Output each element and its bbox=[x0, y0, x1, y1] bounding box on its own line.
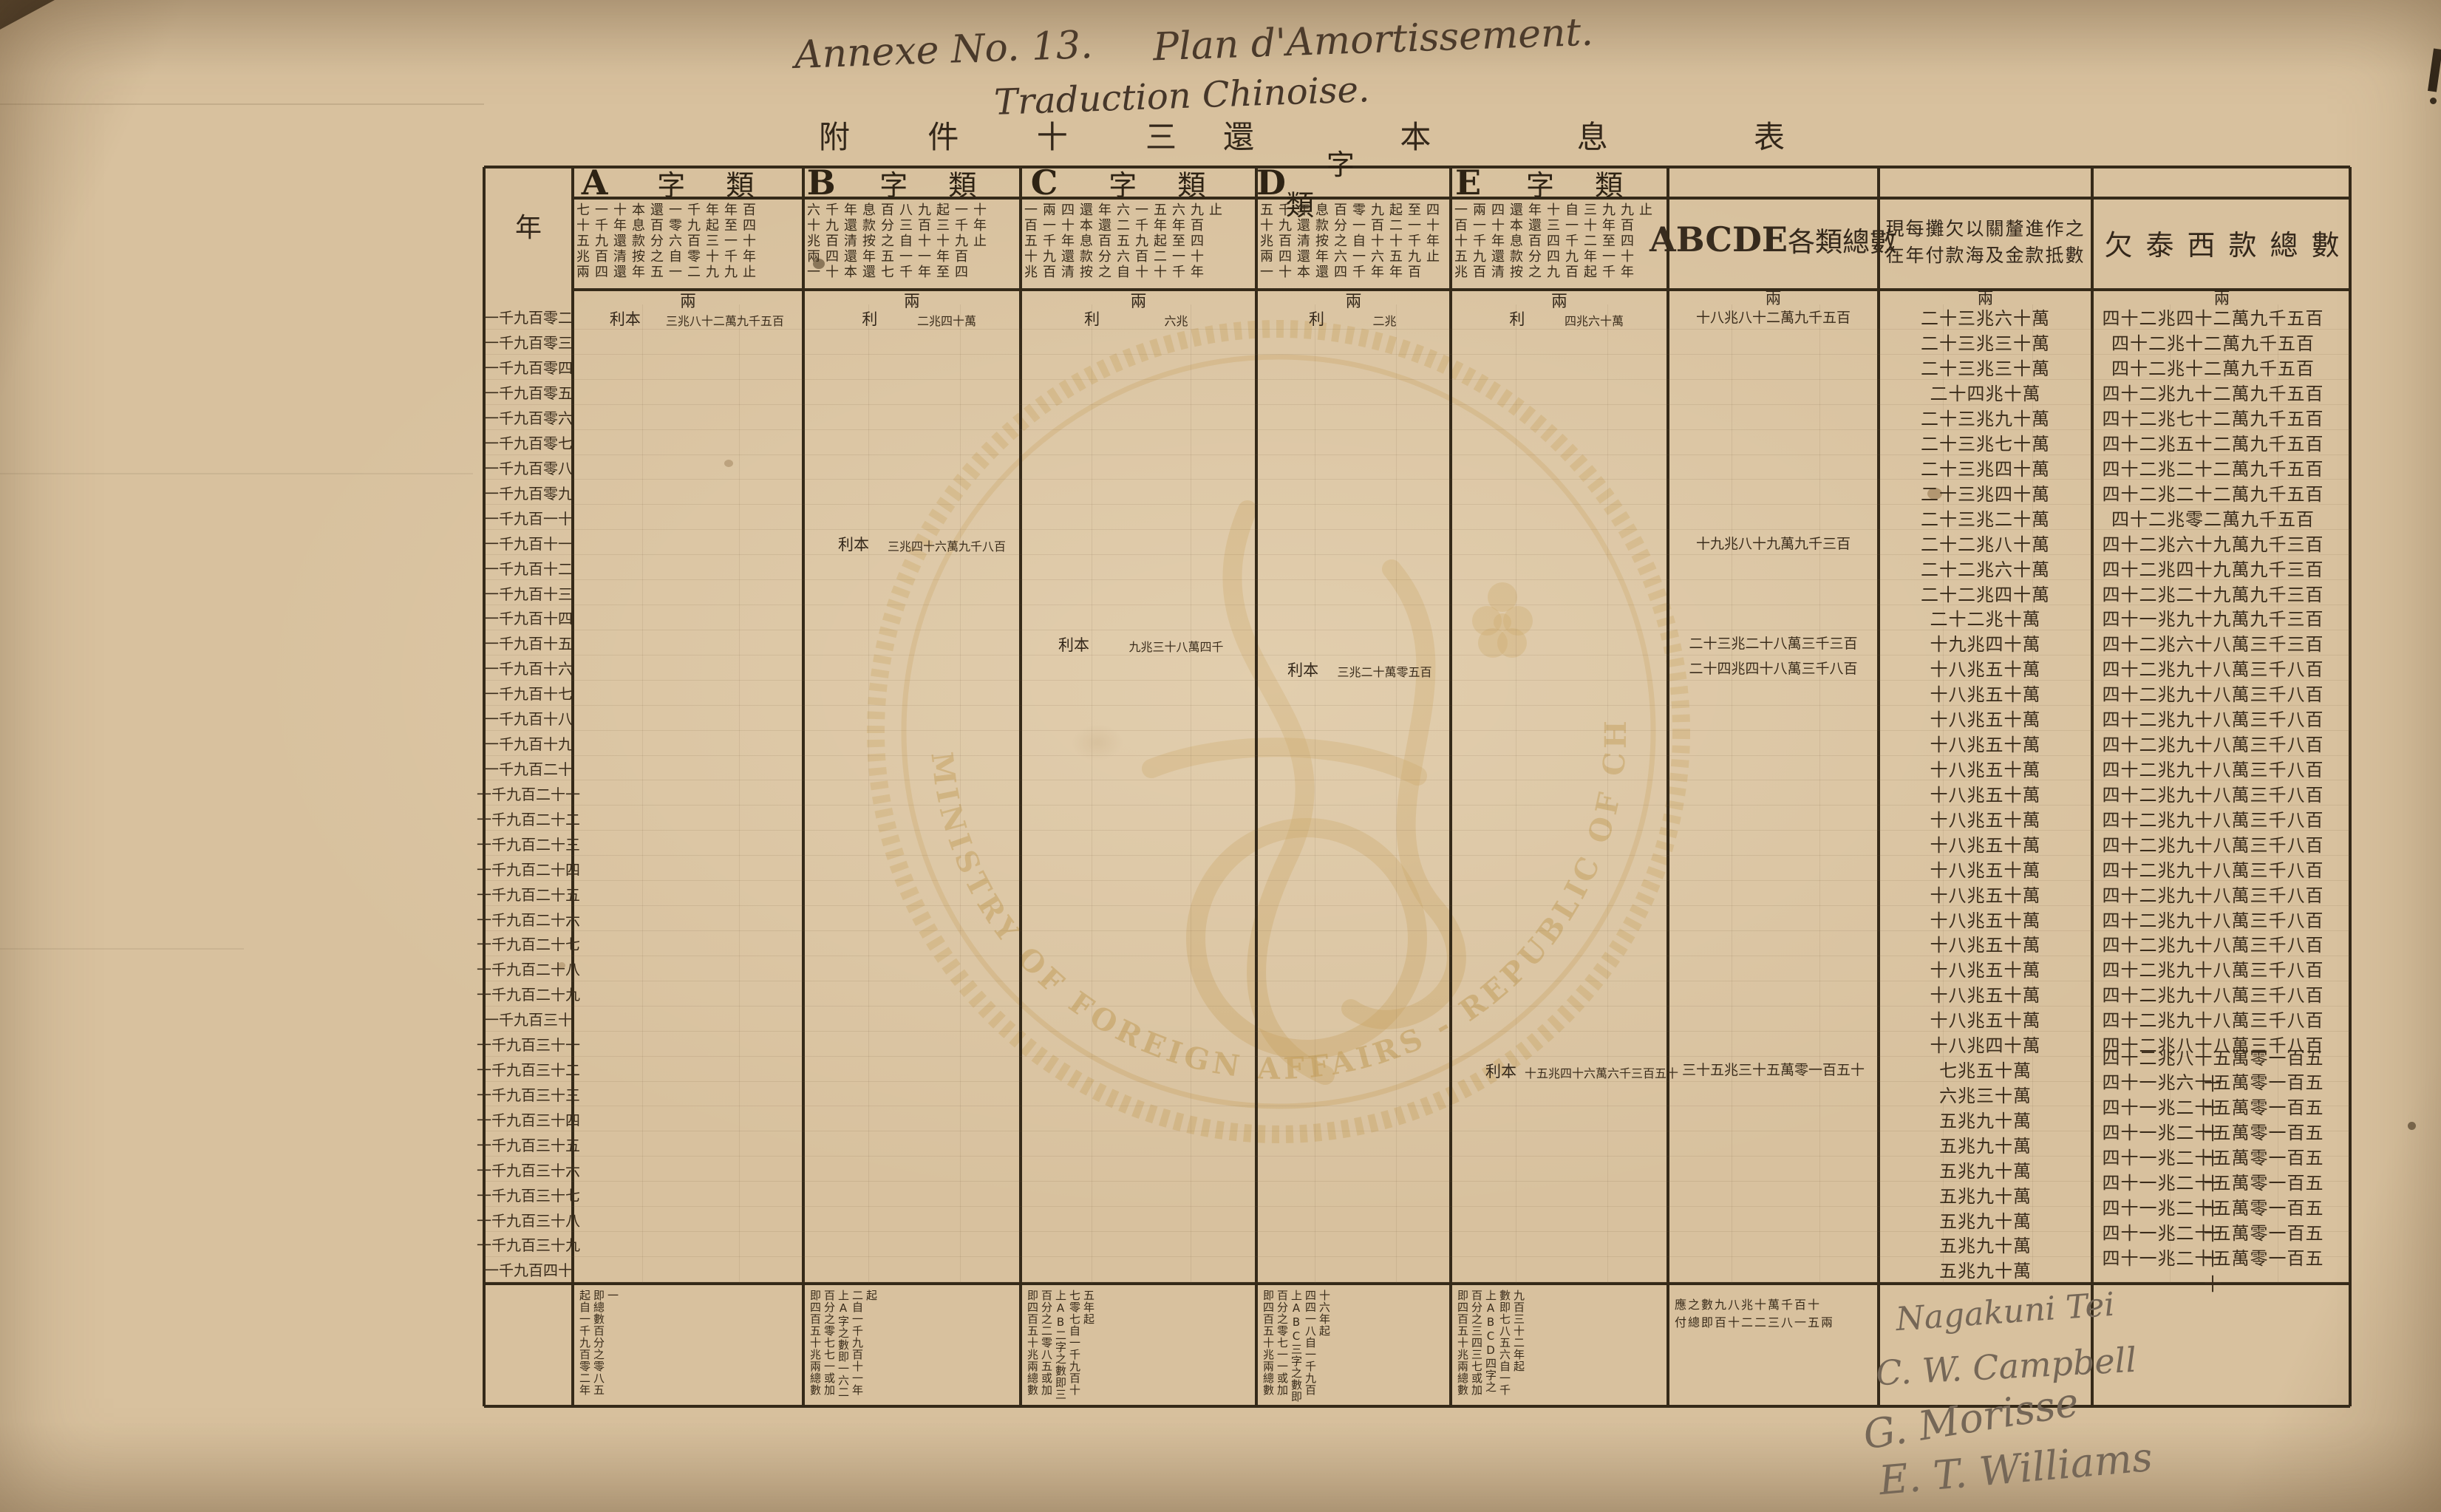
annual-payment-value: 十八兆五十萬 bbox=[1879, 831, 2092, 856]
annual-payment-value: 五兆九十萬 bbox=[1879, 1257, 2092, 1282]
owed-total-value: 四十二兆九十八萬三千八百 bbox=[2095, 806, 2331, 831]
category-letter: B bbox=[807, 163, 836, 202]
owed-total-value: 四十二兆二十二萬九千五百 bbox=[2095, 455, 2331, 480]
owed-total-value: 四十一兆九十九萬九千三百 bbox=[2095, 605, 2331, 630]
paper-crease bbox=[0, 103, 484, 105]
annual-payment-header-line1: 現每攤欠以關釐進作之 bbox=[1885, 214, 2085, 241]
pencil-column-guide bbox=[2278, 304, 2278, 1284]
year-row-label: 一千九百十六 bbox=[475, 655, 582, 681]
year-row-label: 一千九百二十 bbox=[475, 756, 582, 781]
table-rule-vertical bbox=[2349, 167, 2352, 1406]
interest-principal-label: 利 bbox=[862, 307, 877, 330]
interest-principal-label: 利本 bbox=[610, 307, 641, 330]
pencil-column-guide bbox=[2032, 304, 2033, 1284]
pencil-column-guide bbox=[1943, 304, 1944, 1284]
chinese-title-annex-number: 附 件 十 三 bbox=[819, 112, 1211, 157]
annual-payment-value: 十八兆四十萬 bbox=[1879, 1032, 2092, 1057]
pencil-column-guide bbox=[1191, 304, 1191, 1284]
annual-payment-value: 二十四兆十萬 bbox=[1879, 380, 2092, 405]
annotation-amount: 三兆四十六萬九千八百 bbox=[877, 537, 1016, 554]
interest-principal-annotation: 利本九兆三十八萬四千 bbox=[1021, 630, 1256, 655]
annual-payment-value: 十八兆五十萬 bbox=[1879, 1007, 2092, 1032]
scan-edge-artifact bbox=[2428, 48, 2441, 92]
stain bbox=[2408, 1122, 2416, 1130]
year-row-label: 一千九百二十一 bbox=[475, 780, 582, 806]
annual-payment-value: 五兆九十萬 bbox=[1879, 1157, 2092, 1182]
annotation-amount: 二兆 bbox=[1322, 311, 1446, 329]
owed-total-value: 四十二兆十二萬九千五百 bbox=[2095, 355, 2331, 380]
pencil-column-guide bbox=[739, 304, 740, 1284]
pencil-column-guide bbox=[868, 304, 869, 1284]
year-row-label: 一千九百二十五 bbox=[475, 881, 582, 906]
year-row-label: 一千九百十三 bbox=[475, 580, 582, 605]
annual-payment-value: 十八兆五十萬 bbox=[1879, 655, 2092, 681]
category-footnote: 即四百五十兆兩總數百分之二零八五或加上AB二字之數即三七零七自一千九百十五年起 bbox=[1025, 1290, 1252, 1404]
owed-total-value: 四十二兆九十八萬三千八百 bbox=[2095, 1007, 2331, 1032]
pencil-column-guide bbox=[1092, 304, 1092, 1284]
category-terms-vertical-text: 一百五十兆兩一千九百四十年還清還本息款按年還百分之六二五六自一千九百十五年起二十… bbox=[1021, 202, 1256, 288]
summary-annuity-value: 二十三兆二十八萬三千三百 bbox=[1668, 630, 1879, 655]
owed-total-value: 四十二兆七十二萬九千五百 bbox=[2095, 405, 2331, 430]
summary-annuity-value: 二十四兆四十八萬三千八百 bbox=[1668, 655, 1879, 681]
category-title-cn: 字類 bbox=[839, 163, 1017, 203]
year-row-label: 一千九百三十三 bbox=[475, 1082, 582, 1107]
owed-total-value: 四十二兆九十八萬三千八百 bbox=[2095, 906, 2331, 931]
year-row-label: 一千九百零六 bbox=[475, 405, 582, 430]
annotation-amount: 九兆三十八萬四千 bbox=[1100, 637, 1251, 655]
annual-payment-value: 二十三兆四十萬 bbox=[1879, 455, 2092, 480]
year-row-label: 一千九百二十三 bbox=[475, 831, 582, 856]
year-row-label: 一千九百十四 bbox=[475, 605, 582, 630]
owed-total-value: 四十二兆九十八萬三千八百 bbox=[2095, 706, 2331, 731]
owed-total-value: 四十二兆十二萬九千五百 bbox=[2095, 330, 2331, 355]
interest-principal-annotation: 利二兆四十萬 bbox=[803, 304, 1021, 330]
category-title: A 字類 bbox=[573, 167, 803, 198]
year-row-label: 一千九百十二 bbox=[475, 555, 582, 580]
year-row-label: 一千九百二十四 bbox=[475, 856, 582, 881]
pencil-column-guide bbox=[1732, 304, 1732, 1284]
annual-payment-value: 二十三兆四十萬 bbox=[1879, 480, 2092, 505]
annual-payment-value: 二十三兆二十萬 bbox=[1879, 505, 2092, 530]
annual-payment-value: 十八兆五十萬 bbox=[1879, 931, 2092, 956]
annual-payment-value: 五兆九十萬 bbox=[1879, 1131, 2092, 1157]
owed-total-value: 四十二兆九十八萬三千八百 bbox=[2095, 731, 2331, 756]
annual-payment-value: 十八兆五十萬 bbox=[1879, 756, 2092, 781]
year-row-label: 一千九百三十五 bbox=[475, 1131, 582, 1157]
annual-payment-value: 七兆五十萬 bbox=[1879, 1057, 2092, 1082]
owed-total-value: 四十二兆五十二萬九千五百 bbox=[2095, 430, 2331, 455]
year-row-label: 一千九百十八 bbox=[475, 706, 582, 731]
pencil-column-guide bbox=[1607, 304, 1608, 1284]
owed-total-value: 四十二兆零二萬九千五百 bbox=[2095, 505, 2331, 530]
interest-principal-annotation: 利本三兆四十六萬九千八百 bbox=[803, 530, 1021, 555]
year-row-label: 一千九百三十 bbox=[475, 1007, 582, 1032]
category-letter: C bbox=[1031, 163, 1058, 202]
interest-principal-annotation: 利四兆六十萬 bbox=[1451, 304, 1668, 330]
category-title: E 字類 bbox=[1451, 167, 1668, 198]
annual-payment-value: 二十三兆七十萬 bbox=[1879, 430, 2092, 455]
category-letter: D bbox=[1256, 163, 1286, 202]
year-column-header: 年 bbox=[484, 200, 573, 251]
annual-payment-column-header: 現每攤欠以關釐進作之 在年付款海及金款抵數 bbox=[1880, 210, 2091, 272]
owed-total-value: 四十二兆九十八萬三千八百 bbox=[2095, 956, 2331, 981]
year-row-label: 一千九百十九 bbox=[475, 731, 582, 756]
category-title-cn: 字類 bbox=[1485, 163, 1664, 203]
year-row-label: 一千九百十五 bbox=[475, 630, 582, 655]
category-column: A 字類 七十五兆兩一千九百四十年還清還本息款按年還百分之五一零六自一千九百零二… bbox=[573, 167, 803, 1406]
paper-crease bbox=[0, 473, 473, 474]
annotation-amount: 二兆四十萬 bbox=[877, 311, 1016, 329]
owed-total-value: 四十二兆九十八萬三千八百 bbox=[2095, 780, 2331, 806]
owed-total-value: 四十二兆九十八萬三千八百 bbox=[2095, 931, 2331, 956]
owed-total-value: 四十二兆二十二萬九千五百 bbox=[2095, 480, 2331, 505]
summary-annuity-value: 三十五兆三十五萬零一百五十 bbox=[1668, 1057, 1879, 1082]
interest-principal-annotation: 利本三兆二十萬零五百 bbox=[1256, 655, 1451, 681]
interest-principal-label: 利本 bbox=[1058, 633, 1089, 655]
category-terms-vertical-text: 五十兆兩一千九百四十年還清還本息款按年還百分之六四零一自一千九百十六年起二十五年… bbox=[1256, 202, 1451, 288]
year-row-label: 一千九百零七 bbox=[475, 430, 582, 455]
year-row-label: 一千九百二十六 bbox=[475, 906, 582, 931]
category-column: B 字類 六十兆兩一千九百四十年還清還本息款按年還百分之五七八三自一千九百十一年… bbox=[803, 167, 1021, 1406]
category-footnote: 即四百五十兆兩總數百分之三四三七或加上ABCD四字之數即七八五六自一千九百三十二… bbox=[1455, 1290, 1664, 1404]
year-row-label: 一千九百零八 bbox=[475, 455, 582, 480]
interest-principal-annotation: 利六兆 bbox=[1021, 304, 1256, 330]
year-row-label: 一千九百二十二 bbox=[475, 806, 582, 831]
year-row-label: 一千九百三十一 bbox=[475, 1032, 582, 1057]
grand-total-note-line1: 應之數九八兆十萬千百十 bbox=[1675, 1295, 1821, 1312]
annual-payment-value: 十八兆五十萬 bbox=[1879, 881, 2092, 906]
annual-payment-value: 十八兆五十萬 bbox=[1879, 706, 2092, 731]
year-row-label: 一千九百零四 bbox=[475, 355, 582, 380]
attestation-signature: Nagakuni Tei bbox=[1895, 1286, 2116, 1339]
annual-payment-value: 十八兆五十萬 bbox=[1879, 956, 2092, 981]
annual-payment-value: 十八兆五十萬 bbox=[1879, 906, 2092, 931]
attestation-signature: C. W. Campbell bbox=[1875, 1340, 2137, 1393]
owed-total-value: 四十二兆九十八萬三千八百 bbox=[2095, 981, 2331, 1007]
annual-payment-value: 二十二兆十萬 bbox=[1879, 605, 2092, 630]
annual-payment-value: 十八兆五十萬 bbox=[1879, 981, 2092, 1007]
year-row-label: 一千九百零九 bbox=[475, 480, 582, 505]
year-row-label: 一千九百二十七 bbox=[475, 931, 582, 956]
interest-principal-annotation: 利本三兆八十二萬九千五百 bbox=[573, 304, 803, 330]
year-row-label: 一千九百三十八 bbox=[475, 1207, 582, 1232]
pencil-column-guide bbox=[1516, 304, 1516, 1284]
plan-title: Plan d'Amortissement. bbox=[1152, 10, 1594, 70]
owed-total-value: 四十二兆九十八萬三千八百 bbox=[2095, 831, 2331, 856]
category-title: D 字類 bbox=[1256, 167, 1451, 198]
annual-payment-value: 二十三兆三十萬 bbox=[1879, 355, 2092, 380]
year-row-label: 一千九百四十 bbox=[475, 1257, 582, 1282]
annual-payment-value: 二十三兆九十萬 bbox=[1879, 405, 2092, 430]
category-title: B 字類 bbox=[803, 167, 1021, 198]
owed-total-value: 四十二兆九十二萬九千五百 bbox=[2095, 380, 2331, 405]
category-letter: E bbox=[1455, 163, 1481, 202]
year-row-label: 一千九百零二 bbox=[475, 304, 582, 330]
annotation-amount: 十五兆四十六萬六千三百五十 bbox=[1525, 1063, 1664, 1081]
annual-payment-value: 五兆九十萬 bbox=[1879, 1106, 2092, 1131]
annual-payment-value: 十九兆四十萬 bbox=[1879, 630, 2092, 655]
summary-header-latin: ABCDE bbox=[1650, 219, 1788, 259]
owed-total-value: 四十二兆二十九萬九千三百 bbox=[2095, 580, 2331, 605]
year-row-label: 一千九百三十二 bbox=[475, 1057, 582, 1082]
owed-column-header: 欠泰西款總數 bbox=[2094, 222, 2350, 263]
owed-total-value: 四十二兆四十九萬九千三百 bbox=[2095, 555, 2331, 580]
interest-principal-annotation: 利二兆 bbox=[1256, 304, 1451, 330]
paper-crease bbox=[0, 948, 244, 950]
owed-total-value: 四十二兆九十八萬三千八百 bbox=[2095, 856, 2331, 881]
category-column: D 字類 五十兆兩一千九百四十年還清還本息款按年還百分之六四零一自一千九百十六年… bbox=[1256, 167, 1451, 1406]
owed-total-value: 四十二兆九十八萬三千八百 bbox=[2095, 756, 2331, 781]
summary-column-header: ABCDE各類總數 bbox=[1669, 216, 1877, 263]
annual-payment-value: 十八兆五十萬 bbox=[1879, 681, 2092, 706]
scan-corner-artifact bbox=[0, 0, 55, 30]
owed-total-value: 四十二兆九十八萬三千八百 bbox=[2095, 655, 2331, 681]
category-title: C 字類 bbox=[1021, 167, 1256, 198]
annual-payment-value: 十八兆五十萬 bbox=[1879, 856, 2092, 881]
category-terms-vertical-text: 七十五兆兩一千九百四十年還清還本息款按年還百分之五一零六自一千九百零二年起三十九… bbox=[573, 202, 803, 288]
annual-payment-value: 五兆九十萬 bbox=[1879, 1207, 2092, 1232]
interest-principal-label: 利 bbox=[1509, 307, 1525, 330]
summary-annuity-value: 十八兆八十二萬九千五百 bbox=[1668, 304, 1879, 330]
annual-payment-value: 二十三兆三十萬 bbox=[1879, 330, 2092, 355]
annual-payment-value: 五兆九十萬 bbox=[1879, 1182, 2092, 1207]
annual-payment-value: 十八兆五十萬 bbox=[1879, 780, 2092, 806]
category-footnote: 即四百五十兆兩總數百分之零七一一或加上ABC三字之數即四四一八自一千九百十六年起 bbox=[1261, 1290, 1446, 1404]
pencil-column-guide bbox=[960, 304, 961, 1284]
annual-payment-value: 二十二兆四十萬 bbox=[1879, 580, 2092, 605]
annual-payment-value: 五兆九十萬 bbox=[1879, 1232, 2092, 1257]
owed-total-value: 四十二兆九十八萬三千八百 bbox=[2095, 881, 2331, 906]
grand-total-note-line2: 付總即百十二二三八一五兩 bbox=[1675, 1312, 1834, 1330]
annual-payment-value: 二十二兆八十萬 bbox=[1879, 530, 2092, 555]
pencil-column-guide bbox=[642, 304, 643, 1284]
year-row-label: 一千九百二十九 bbox=[475, 981, 582, 1007]
pencil-column-guide bbox=[1315, 304, 1315, 1284]
year-row-label: 一千九百三十九 bbox=[475, 1232, 582, 1257]
annotation-amount: 六兆 bbox=[1100, 311, 1251, 329]
year-row-label: 一千九百三十七 bbox=[475, 1182, 582, 1207]
interest-principal-annotation: 利本十五兆四十六萬六千三百五十 bbox=[1451, 1057, 1668, 1082]
annotation-amount: 三兆八十二萬九千五百 bbox=[651, 311, 799, 329]
interest-principal-label: 利本 bbox=[1287, 658, 1318, 681]
annual-payment-header-line2: 在年付款海及金款抵數 bbox=[1885, 241, 2085, 268]
owed-total-value: 四十二兆四十二萬九千五百 bbox=[2095, 304, 2331, 330]
pencil-column-guide bbox=[1396, 304, 1397, 1284]
year-row-label: 一千九百三十四 bbox=[475, 1106, 582, 1131]
annexe-title: Annexe No. 13. bbox=[794, 23, 1093, 78]
category-footnote: 即四百五十兆兩總數百分之零七七一或加上A字之數即一六二二自一千九百十一年起 bbox=[808, 1290, 1016, 1404]
annotation-amount: 三兆二十萬零五百 bbox=[1322, 662, 1446, 680]
category-footnote: 起自一千九百零二年即總數百分之零八五一 bbox=[577, 1290, 799, 1404]
annual-payment-value: 二十三兆六十萬 bbox=[1879, 304, 2092, 330]
category-title-cn: 字類 bbox=[1068, 163, 1246, 203]
owed-total-value: 四十二兆六十八萬三千三百 bbox=[2095, 630, 2331, 655]
summary-annuity-value: 十九兆八十九萬九千三百 bbox=[1668, 530, 1879, 555]
annotation-amount: 四兆六十萬 bbox=[1525, 311, 1664, 329]
year-row-label: 一千九百二十八 bbox=[475, 956, 582, 981]
pencil-column-guide bbox=[1819, 304, 1820, 1284]
scanned-document-page: MINISTRY OF FOREIGN AFFAIRS - REPUBLIC O… bbox=[0, 0, 2441, 1512]
annual-payment-value: 二十二兆六十萬 bbox=[1879, 555, 2092, 580]
year-row-label: 一千九百十七 bbox=[475, 681, 582, 706]
annual-payment-value: 十八兆五十萬 bbox=[1879, 731, 2092, 756]
year-row-label: 一千九百零三 bbox=[475, 330, 582, 355]
interest-principal-label: 利本 bbox=[838, 533, 869, 555]
category-letter: A bbox=[582, 163, 608, 202]
category-column: C 字類 一百五十兆兩一千九百四十年還清還本息款按年還百分之六二五六自一千九百十… bbox=[1021, 167, 1256, 1406]
category-title-cn: 字類 bbox=[616, 163, 794, 203]
annual-payment-value: 六兆三十萬 bbox=[1879, 1082, 2092, 1107]
interest-principal-label: 利本 bbox=[1485, 1060, 1516, 1082]
year-row-label: 一千九百十一 bbox=[475, 530, 582, 555]
year-row-label: 一千九百三十六 bbox=[475, 1157, 582, 1182]
scan-edge-dot bbox=[2430, 98, 2437, 104]
owed-total-value: 四十一兆二十五萬零一百五十 bbox=[2095, 1257, 2331, 1282]
annual-payment-value: 十八兆五十萬 bbox=[1879, 806, 2092, 831]
year-row-label: 一千九百零五 bbox=[475, 380, 582, 405]
category-terms-vertical-text: 一百十五兆兩一千九百四十年還清還本息款按年還百分之十三四四九自一千九百三十二年起… bbox=[1451, 202, 1668, 288]
category-column: E 字類 一百十五兆兩一千九百四十年還清還本息款按年還百分之十三四四九自一千九百… bbox=[1451, 167, 1668, 1406]
owed-total-value: 四十二兆九十八萬三千八百 bbox=[2095, 681, 2331, 706]
category-terms-vertical-text: 六十兆兩一千九百四十年還清還本息款按年還百分之五七八三自一千九百十一年起三十年至… bbox=[803, 202, 1021, 288]
year-row-label: 一千九百一十 bbox=[475, 505, 582, 530]
owed-total-value: 四十二兆六十九萬九千三百 bbox=[2095, 530, 2331, 555]
pencil-column-guide bbox=[2170, 304, 2171, 1284]
